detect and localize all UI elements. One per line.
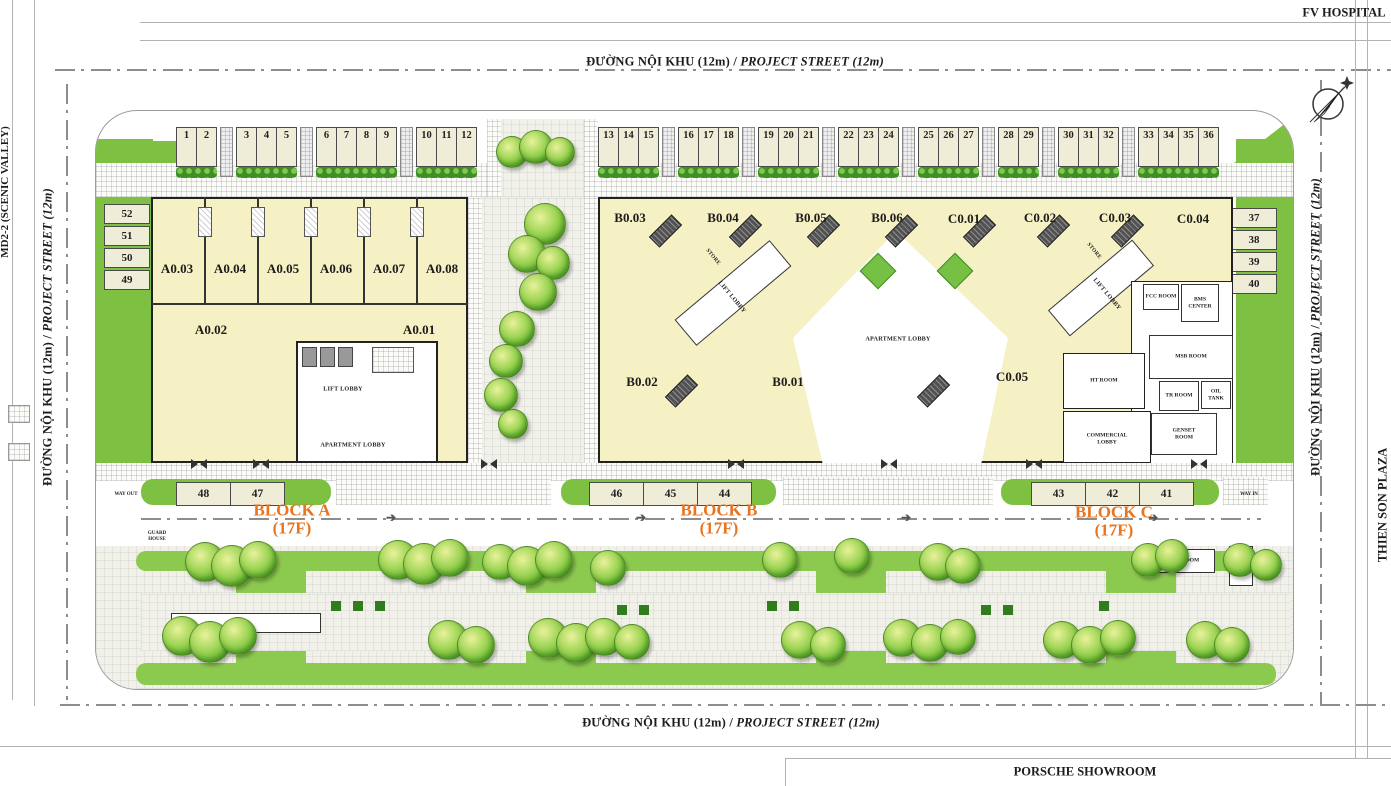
planter bbox=[1099, 601, 1109, 611]
walkway-column bbox=[584, 119, 598, 197]
road-line bbox=[140, 22, 1391, 23]
parking-stall: 38 bbox=[1231, 230, 1277, 250]
parking-row-top-right: 1314151617181920212223242526272829303132… bbox=[598, 127, 1219, 177]
entrance-marker bbox=[481, 459, 497, 469]
street-label-top: ĐƯỜNG NỘI KHU (12m) / PROJECT STREET (12… bbox=[586, 55, 884, 70]
tree-icon bbox=[762, 542, 798, 578]
shaft bbox=[410, 207, 424, 237]
tree-icon bbox=[219, 617, 257, 655]
parking-stall: 23 bbox=[858, 127, 879, 167]
commercial-lobby-label: COMMERCIAL LOBBY bbox=[1077, 432, 1137, 445]
tree-icon bbox=[834, 538, 870, 574]
tr-room-label: TR ROOM bbox=[1162, 393, 1196, 400]
planter bbox=[375, 601, 385, 611]
shaft bbox=[251, 207, 265, 237]
tree-icon bbox=[545, 137, 575, 167]
unit-label: B0.06 bbox=[871, 210, 902, 226]
unit-label: A0.01 bbox=[403, 322, 435, 338]
unit-label: C0.01 bbox=[948, 211, 980, 227]
pillar bbox=[742, 127, 755, 177]
tree-icon bbox=[489, 344, 523, 378]
msb-room-label: MSB ROOM bbox=[1174, 354, 1208, 361]
planter bbox=[981, 605, 991, 615]
street-name-en: PROJECT STREET (12m) bbox=[1309, 178, 1323, 322]
stair-core bbox=[665, 374, 698, 407]
unit-label: A0.04 bbox=[214, 261, 246, 277]
walkway-column bbox=[584, 197, 598, 479]
block-a-label: BLOCK A (17F) bbox=[254, 502, 331, 539]
direction-arrow-icon: ➔ bbox=[901, 511, 911, 526]
parking-stall: 14 bbox=[618, 127, 639, 167]
unit-label: C0.04 bbox=[1177, 211, 1209, 227]
block-c-name: BLOCK C bbox=[1075, 504, 1153, 522]
parking-stall: 34 bbox=[1158, 127, 1179, 167]
parking-stall: 48 bbox=[176, 482, 231, 506]
parking-col-right: 37383940 bbox=[1231, 208, 1277, 294]
street-name-vn: ĐƯỜNG NỘI KHU (12m) / bbox=[582, 716, 733, 730]
entrance-marker bbox=[1191, 459, 1207, 469]
stair bbox=[372, 347, 414, 373]
unit-label: B0.05 bbox=[795, 210, 826, 226]
parking-stall: 37 bbox=[1231, 208, 1277, 228]
neighbor-scenic-valley: MD2-2 (SCENIC VALLEY) bbox=[0, 126, 11, 258]
parking-stall: 27 bbox=[958, 127, 979, 167]
tree-icon bbox=[535, 541, 573, 579]
site-plan-canvas: ĐƯỜNG NỘI KHU (12m) / PROJECT STREET (12… bbox=[0, 0, 1391, 786]
tree-icon bbox=[1155, 539, 1189, 573]
direction-arrow-icon: ➔ bbox=[636, 511, 646, 526]
pillar bbox=[662, 127, 675, 177]
street-name-en: PROJECT STREET (12m) bbox=[740, 55, 884, 69]
parking-stall-group: 2829 bbox=[998, 127, 1039, 167]
walkway-column bbox=[468, 197, 482, 479]
street-name-en: PROJECT STREET (12m) bbox=[736, 716, 880, 730]
pillar bbox=[982, 127, 995, 177]
parking-stall: 2 bbox=[196, 127, 217, 167]
parking-stall-group: 192021 bbox=[758, 127, 819, 167]
site-parcel: 123456789101112 131415161718192021222324… bbox=[95, 110, 1294, 690]
neighbor-porsche-showroom: PORSCHE SHOWROOM bbox=[1014, 765, 1157, 780]
tree-icon bbox=[431, 539, 469, 577]
fcc-room-label: FCC ROOM bbox=[1144, 294, 1178, 301]
pillar bbox=[902, 127, 915, 177]
parking-stall: 6 bbox=[316, 127, 337, 167]
elevator bbox=[320, 347, 335, 367]
parking-stall: 35 bbox=[1178, 127, 1199, 167]
entrance-marker bbox=[728, 459, 744, 469]
unit-label: B0.03 bbox=[614, 210, 645, 226]
parking-stall: 40 bbox=[1231, 274, 1277, 294]
street-name-vn: ĐƯỜNG NỘI KHU (12m) / bbox=[1309, 325, 1323, 476]
planter bbox=[767, 601, 777, 611]
parking-stall: 52 bbox=[104, 204, 150, 224]
tree-icon bbox=[1214, 627, 1250, 663]
unit-label: C0.05 bbox=[996, 369, 1028, 385]
curb-detail bbox=[8, 443, 30, 461]
entrance-marker bbox=[881, 459, 897, 469]
parking-stall: 1 bbox=[176, 127, 197, 167]
parking-stall: 46 bbox=[589, 482, 644, 506]
parking-stall: 10 bbox=[416, 127, 437, 167]
street-label-bottom: ĐƯỜNG NỘI KHU (12m) / PROJECT STREET (12… bbox=[582, 716, 880, 731]
crosswalk bbox=[336, 477, 551, 505]
tree-icon bbox=[945, 548, 981, 584]
parking-stall: 18 bbox=[718, 127, 739, 167]
wall bbox=[151, 303, 468, 305]
parking-stall: 36 bbox=[1198, 127, 1219, 167]
street-name-en: PROJECT STREET (12m) bbox=[41, 188, 55, 332]
road-line bbox=[0, 746, 1391, 747]
pillar bbox=[822, 127, 835, 177]
parking-stall: 31 bbox=[1078, 127, 1099, 167]
street-name-vn: ĐƯỜNG NỘI KHU (12m) / bbox=[586, 55, 737, 69]
tree-icon bbox=[614, 624, 650, 660]
parking-stall: 50 bbox=[104, 248, 150, 268]
neighbor-thien-son-plaza: THIEN SON PLAZA bbox=[1376, 448, 1391, 563]
parking-col-left: 52515049 bbox=[104, 204, 150, 290]
tree-icon bbox=[498, 409, 528, 439]
planter bbox=[789, 601, 799, 611]
parking-stall: 32 bbox=[1098, 127, 1119, 167]
apartment-lobby-label: APARTMENT LOBBY bbox=[865, 336, 930, 343]
shaft bbox=[304, 207, 318, 237]
pillar bbox=[400, 127, 413, 177]
direction-arrow-icon: ➔ bbox=[386, 511, 396, 526]
tree-icon bbox=[519, 273, 557, 311]
parking-stall: 51 bbox=[104, 226, 150, 246]
parking-stall-group: 33343536 bbox=[1138, 127, 1219, 167]
parking-stall: 33 bbox=[1138, 127, 1159, 167]
lift-lobby-label: LIFT LOBBY bbox=[323, 386, 363, 393]
elevator bbox=[338, 347, 353, 367]
tree-icon bbox=[484, 378, 518, 412]
curb-detail bbox=[8, 405, 30, 423]
parking-stall: 28 bbox=[998, 127, 1019, 167]
planter bbox=[639, 605, 649, 615]
block-b-label: BLOCK B (17F) bbox=[681, 502, 758, 539]
unit-label: B0.04 bbox=[707, 210, 738, 226]
parking-stall: 26 bbox=[938, 127, 959, 167]
parking-stall-group: 222324 bbox=[838, 127, 899, 167]
parking-stall: 20 bbox=[778, 127, 799, 167]
ht-room-label: HT ROOM bbox=[1087, 378, 1121, 385]
parking-stall: 19 bbox=[758, 127, 779, 167]
unit-label: A0.05 bbox=[267, 261, 299, 277]
parking-stall: 5 bbox=[276, 127, 297, 167]
tree-icon bbox=[810, 627, 846, 663]
parking-stall-group: 303132 bbox=[1058, 127, 1119, 167]
unit-label: A0.08 bbox=[426, 261, 458, 277]
tree-icon bbox=[1250, 549, 1282, 581]
planter bbox=[617, 605, 627, 615]
unit-label: C0.02 bbox=[1024, 210, 1056, 226]
pillar bbox=[300, 127, 313, 177]
stair-core bbox=[649, 214, 682, 247]
pillar bbox=[1122, 127, 1135, 177]
parking-stall: 15 bbox=[638, 127, 659, 167]
genset-room-label: GENSET ROOM bbox=[1167, 427, 1201, 440]
planter bbox=[353, 601, 363, 611]
unit-label: A0.06 bbox=[320, 261, 352, 277]
pillar bbox=[220, 127, 233, 177]
parking-stall: 21 bbox=[798, 127, 819, 167]
parking-stall-group: 161718 bbox=[678, 127, 739, 167]
unit-label: A0.07 bbox=[373, 261, 405, 277]
street-label-right: ĐƯỜNG NỘI KHU (12m) / PROJECT STREET (12… bbox=[1309, 178, 1324, 476]
parking-stall: 12 bbox=[456, 127, 477, 167]
parking-stall: 49 bbox=[104, 270, 150, 290]
parking-stall-group: 6789 bbox=[316, 127, 397, 167]
block-c-floors: (17F) bbox=[1075, 522, 1153, 540]
parking-stall: 22 bbox=[838, 127, 859, 167]
tree-icon bbox=[457, 626, 495, 664]
parking-stall: 24 bbox=[878, 127, 899, 167]
guard-house-label: GUARD HOUSE bbox=[143, 531, 171, 543]
block-c-label: BLOCK C (17F) bbox=[1075, 504, 1153, 541]
apartment-lobby-label: APARTMENT LOBBY bbox=[320, 442, 385, 449]
road-centerline bbox=[66, 84, 68, 700]
parking-stall: 4 bbox=[256, 127, 277, 167]
way-in-label: WAY IN bbox=[1234, 492, 1264, 498]
parking-row-top-left: 123456789101112 bbox=[176, 127, 477, 177]
road-line bbox=[785, 758, 1391, 759]
parking-stall: 25 bbox=[918, 127, 939, 167]
neighbor-fv-hospital: FV HOSPITAL bbox=[1302, 6, 1385, 21]
parking-stall: 11 bbox=[436, 127, 457, 167]
unit-label: A0.03 bbox=[161, 261, 193, 277]
unit-label: B0.01 bbox=[772, 374, 803, 390]
planter bbox=[1003, 605, 1013, 615]
entrance-marker bbox=[253, 459, 269, 469]
parking-stall-group: 345 bbox=[236, 127, 297, 167]
block-a-floors: (17F) bbox=[254, 520, 331, 538]
crosswalk bbox=[783, 477, 993, 505]
shaft bbox=[357, 207, 371, 237]
way-out-label: WAY OUT bbox=[111, 492, 141, 498]
parking-stall: 3 bbox=[236, 127, 257, 167]
parking-stall: 7 bbox=[336, 127, 357, 167]
pillar bbox=[1042, 127, 1055, 177]
elevator bbox=[302, 347, 317, 367]
road-line bbox=[140, 40, 1391, 41]
unit-label: B0.02 bbox=[626, 374, 657, 390]
entrance-marker bbox=[1026, 459, 1042, 469]
parking-stall: 30 bbox=[1058, 127, 1079, 167]
shaft bbox=[198, 207, 212, 237]
road-line bbox=[1367, 0, 1368, 758]
block-a-name: BLOCK A bbox=[254, 502, 331, 520]
tree-icon bbox=[499, 311, 535, 347]
compass-icon bbox=[1300, 72, 1356, 128]
parking-stall: 29 bbox=[1018, 127, 1039, 167]
parking-stall: 9 bbox=[376, 127, 397, 167]
street-label-left: ĐƯỜNG NỘI KHU (12m) / PROJECT STREET (12… bbox=[41, 188, 56, 486]
parking-stall-group: 12 bbox=[176, 127, 217, 167]
road-line bbox=[34, 0, 35, 706]
parking-stall-group: 131415 bbox=[598, 127, 659, 167]
unit-label: C0.03 bbox=[1099, 210, 1131, 226]
parking-stall: 39 bbox=[1231, 252, 1277, 272]
street-name-vn: ĐƯỜNG NỘI KHU (12m) / bbox=[41, 335, 55, 486]
tree-icon bbox=[590, 550, 626, 586]
planter bbox=[331, 601, 341, 611]
tree-icon bbox=[940, 619, 976, 655]
entrance-marker bbox=[191, 459, 207, 469]
parking-stall-group: 101112 bbox=[416, 127, 477, 167]
block-b-floors: (17F) bbox=[681, 520, 758, 538]
bms-center-label: BMS CENTER bbox=[1183, 296, 1217, 309]
tree-icon bbox=[1100, 620, 1136, 656]
parking-stall-group: 252627 bbox=[918, 127, 979, 167]
crosswalk bbox=[1223, 477, 1268, 505]
lawn-strip bbox=[136, 663, 1276, 685]
unit-label: A0.02 bbox=[195, 322, 227, 338]
block-b-name: BLOCK B bbox=[681, 502, 758, 520]
road-centerline bbox=[60, 704, 1391, 706]
parking-stall: 17 bbox=[698, 127, 719, 167]
parking-stall: 13 bbox=[598, 127, 619, 167]
road-line bbox=[785, 758, 786, 786]
parking-stall: 8 bbox=[356, 127, 377, 167]
parking-stall: 16 bbox=[678, 127, 699, 167]
oil-tank-label: OIL TANK bbox=[1203, 388, 1229, 401]
tree-icon bbox=[239, 541, 277, 579]
road-line bbox=[12, 0, 13, 700]
